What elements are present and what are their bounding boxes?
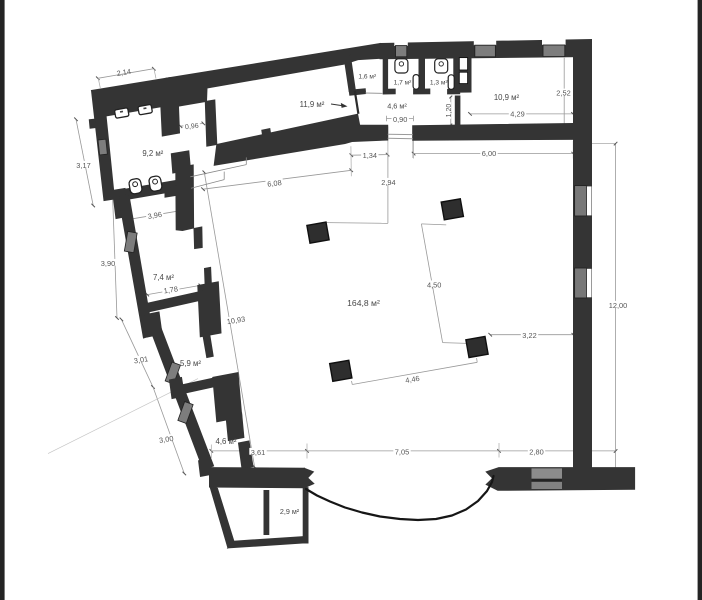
svg-text:2,94: 2,94 bbox=[381, 178, 395, 187]
svg-text:2,80: 2,80 bbox=[529, 447, 543, 456]
svg-text:1,34: 1,34 bbox=[363, 151, 377, 160]
svg-text:4,6 м²: 4,6 м² bbox=[216, 437, 237, 446]
svg-text:10,9 м²: 10,9 м² bbox=[494, 93, 520, 102]
svg-text:12,00: 12,00 bbox=[609, 301, 628, 310]
svg-text:4,50: 4,50 bbox=[427, 280, 441, 289]
svg-text:6,08: 6,08 bbox=[267, 178, 282, 189]
svg-text:1,6 м²: 1,6 м² bbox=[358, 74, 377, 81]
svg-text:3,61: 3,61 bbox=[251, 448, 265, 457]
svg-text:11,9 м²: 11,9 м² bbox=[300, 100, 325, 109]
svg-text:3,90: 3,90 bbox=[101, 259, 115, 268]
svg-text:2,52: 2,52 bbox=[556, 89, 570, 98]
svg-text:5,9 м²: 5,9 м² bbox=[180, 359, 201, 368]
svg-text:4,29: 4,29 bbox=[510, 109, 524, 118]
svg-text:7,4 м²: 7,4 м² bbox=[153, 273, 174, 282]
svg-text:7,05: 7,05 bbox=[395, 447, 409, 456]
svg-text:2,9 м²: 2,9 м² bbox=[280, 507, 300, 516]
svg-text:1,20: 1,20 bbox=[446, 104, 453, 118]
svg-text:164,8 м²: 164,8 м² bbox=[347, 298, 380, 308]
svg-text:3,22: 3,22 bbox=[522, 331, 536, 340]
svg-text:3,17: 3,17 bbox=[76, 161, 90, 170]
svg-text:6,00: 6,00 bbox=[482, 149, 496, 158]
svg-text:1,3 м²: 1,3 м² bbox=[430, 80, 449, 87]
svg-text:1,7 м²: 1,7 м² bbox=[394, 80, 413, 87]
svg-text:0,90: 0,90 bbox=[393, 115, 407, 124]
svg-text:4,6 м²: 4,6 м² bbox=[387, 101, 407, 110]
svg-text:9,2 м²: 9,2 м² bbox=[142, 149, 163, 158]
